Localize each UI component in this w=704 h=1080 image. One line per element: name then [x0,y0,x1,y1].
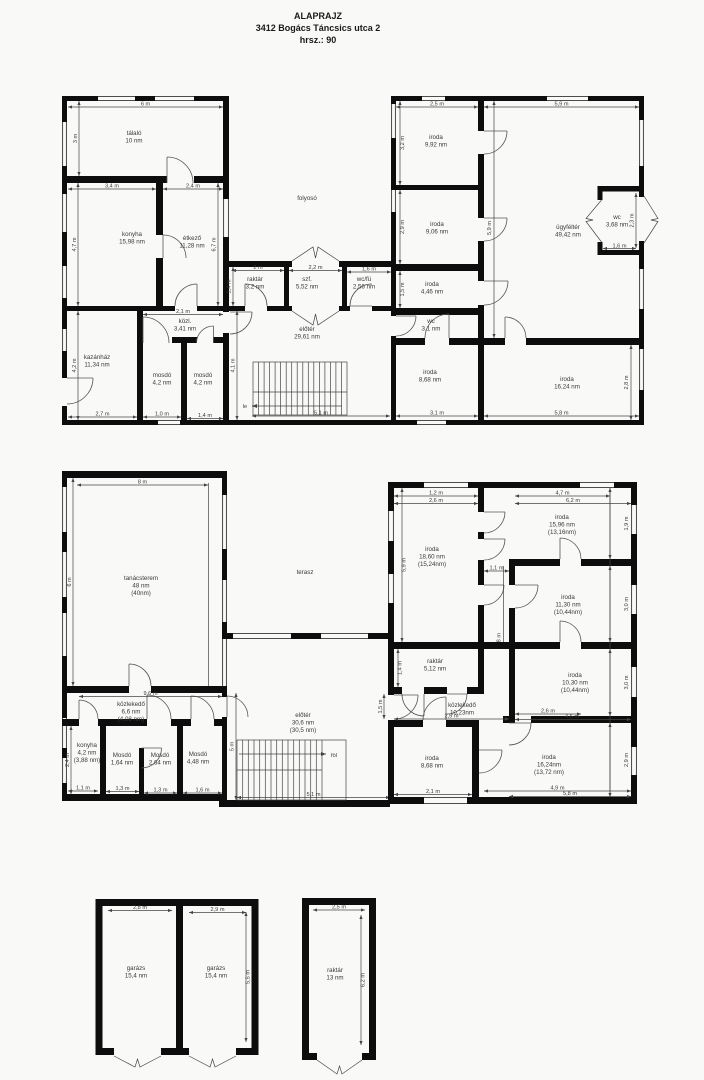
svg-text:2,4 m: 2,4 m [186,183,200,189]
svg-text:4,6 m: 4,6 m [565,714,579,720]
svg-text:6,2 m: 6,2 m [361,973,367,987]
svg-text:6,2 m: 6,2 m [566,498,580,504]
svg-text:ALAPRAJZ: ALAPRAJZ [294,11,343,21]
svg-text:6 m: 6 m [141,101,151,107]
svg-text:2,9 m: 2,9 m [624,753,630,767]
svg-text:1,0 m: 1,0 m [155,411,169,417]
svg-text:5,1 m: 5,1 m [307,792,321,798]
svg-text:mosdó4,2 nm: mosdó4,2 nm [194,372,213,386]
svg-text:folyosó: folyosó [297,195,317,202]
svg-text:3 m: 3 m [73,133,79,143]
svg-text:1,6 m: 1,6 m [196,788,210,794]
svg-text:2 m: 2 m [253,265,263,271]
svg-text:5,8 m: 5,8 m [563,791,577,797]
svg-text:1,3 m: 1,3 m [154,788,168,794]
svg-text:3,1 m: 3,1 m [430,411,444,417]
svg-text:1,1 m: 1,1 m [490,566,504,572]
svg-text:2,2 m: 2,2 m [309,265,323,271]
svg-text:6 m: 6 m [67,577,73,587]
svg-text:5,9 m: 5,9 m [402,558,408,572]
svg-text:4,2 m: 4,2 m [72,358,78,372]
svg-text:2,3 m: 2,3 m [630,213,636,227]
svg-text:1,4 m: 1,4 m [398,661,404,675]
svg-text:1,3 m: 1,3 m [116,786,130,792]
svg-text:2,9 m: 2,9 m [400,220,406,234]
svg-text:3,0 m: 3,0 m [624,675,630,689]
svg-text:8 m: 8 m [138,480,148,486]
svg-text:4,7 m: 4,7 m [556,491,570,497]
svg-text:1,5 m: 1,5 m [378,699,384,713]
svg-text:kazánház11,34 nm: kazánház11,34 nm [84,354,111,368]
svg-text:3412 Bogács Táncsics utca 2: 3412 Bogács Táncsics utca 2 [256,23,381,33]
svg-text:2,8 m: 2,8 m [133,905,147,911]
svg-text:étkező11,28 nm: étkező11,28 nm [179,235,204,249]
svg-text:raktár13 nm: raktár13 nm [326,967,343,981]
svg-text:raktár3,2 nm: raktár3,2 nm [246,276,265,290]
svg-text:2,6 m: 2,6 m [429,498,443,504]
svg-text:2,7 m: 2,7 m [96,411,110,417]
svg-text:4,1 m: 4,1 m [231,358,237,372]
svg-text:1,6 m: 1,6 m [362,267,376,273]
svg-text:Mosdó2,64 nm: Mosdó2,64 nm [149,752,171,766]
svg-text:Mosdó4,48 nm: Mosdó4,48 nm [187,751,209,765]
svg-text:5,9 m: 5,9 m [555,101,569,107]
svg-text:1,6 m: 1,6 m [613,243,627,249]
svg-text:2,5 m: 2,5 m [332,905,346,911]
svg-text:mosdó4,2 nm: mosdó4,2 nm [153,372,172,386]
svg-text:1,9 m: 1,9 m [624,516,630,530]
svg-text:2,5 m: 2,5 m [430,101,444,107]
svg-text:garázs15,4 nm: garázs15,4 nm [125,965,147,979]
svg-text:5,1 m: 5,1 m [314,411,328,417]
svg-text:5,9 m: 5,9 m [487,221,493,235]
svg-text:raktár5,12 nm: raktár5,12 nm [424,658,446,672]
svg-text:hrsz.: 90: hrsz.: 90 [300,35,337,45]
svg-text:3,0 m: 3,0 m [624,597,630,611]
svg-text:2,4 m: 2,4 m [65,753,71,767]
svg-text:1,4 m: 1,4 m [227,279,233,293]
svg-text:2,5 m: 2,5 m [445,714,459,720]
svg-text:2,8 m: 2,8 m [624,375,630,389]
svg-text:2,9 m: 2,9 m [211,907,225,913]
svg-text:2,1 m: 2,1 m [426,789,440,795]
svg-text:5,5 m: 5,5 m [246,970,252,984]
svg-text:Mosdó1,64 nm: Mosdó1,64 nm [111,752,133,766]
svg-text:1,2 m: 1,2 m [429,491,443,497]
svg-text:föl: föl [331,753,337,759]
svg-text:6,7 m: 6,7 m [212,237,218,251]
svg-text:le: le [243,404,247,410]
svg-text:1,5 m: 1,5 m [400,282,406,296]
svg-text:5,8 m: 5,8 m [555,411,569,417]
svg-text:konyha4,2 nm(3,88 nm): konyha4,2 nm(3,88 nm) [74,742,100,764]
svg-text:3,2 m: 3,2 m [400,136,406,150]
svg-text:9,6 m: 9,6 m [144,691,158,697]
svg-text:2,6 m: 2,6 m [541,709,555,715]
svg-text:5 m: 5 m [230,741,236,751]
svg-text:garázs15,4 nm: garázs15,4 nm [205,965,227,979]
svg-text:konyha15,98 nm: konyha15,98 nm [119,231,145,245]
svg-text:4,7 m: 4,7 m [72,237,78,251]
svg-text:3,4 m: 3,4 m [105,183,119,189]
svg-text:tálaló10 nm: tálaló10 nm [125,130,142,144]
svg-text:1,1 m: 1,1 m [76,786,90,792]
svg-text:ügyféltér49,42 nm: ügyféltér49,42 nm [555,224,581,238]
svg-text:1,4 m: 1,4 m [198,413,212,419]
svg-text:2,1 m: 2,1 m [176,309,190,315]
svg-text:terasz: terasz [297,569,314,576]
